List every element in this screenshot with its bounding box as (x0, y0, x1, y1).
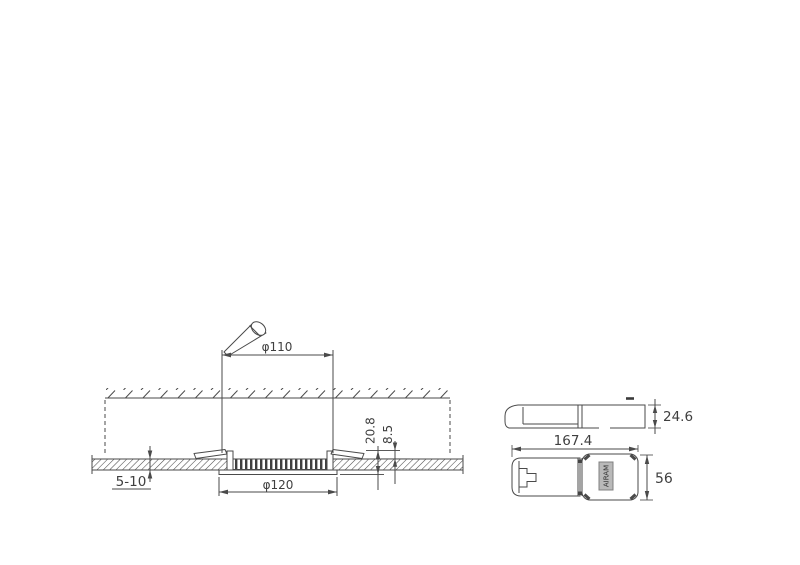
installation-section-view: φ110 φ120 5-10 20.8 (92, 319, 463, 496)
drawing-svg: φ110 φ120 5-10 20.8 (0, 0, 800, 565)
driver-side-view: 24.6 (505, 399, 693, 435)
dim-trim-label: φ120 (263, 478, 294, 492)
heatsink-fins (233, 459, 327, 470)
driver-brand-label: AIRAM (603, 465, 611, 487)
driver-side-outline (505, 405, 645, 428)
dim-thickness-label: 5-10 (116, 474, 147, 490)
trim-flange (219, 470, 337, 475)
dim-total-height-label: 20.8 (364, 417, 378, 444)
dim-driver-length: 167.4 (512, 433, 638, 457)
connector-body-outline (512, 458, 580, 496)
dim-cutout-label: φ110 (262, 340, 293, 354)
spring-clip-right (331, 450, 364, 459)
dim-trim-diameter: φ120 (219, 477, 337, 496)
dim-driver-width: 56 (640, 455, 673, 500)
technical-drawing-page: φ110 φ120 5-10 20.8 (0, 0, 800, 565)
ceiling-reference-line (105, 388, 450, 456)
fixture-rim-left (227, 451, 233, 470)
dim-driver-length-label: 167.4 (554, 433, 593, 449)
dim-driver-height: 24.6 (648, 399, 693, 434)
dim-driver-width-label: 56 (655, 471, 673, 487)
dim-above-ceiling-label: 8.5 (381, 425, 395, 444)
dim-driver-height-label: 24.6 (663, 409, 693, 425)
driver-top-view: AIRAM 167.4 56 (512, 433, 673, 500)
